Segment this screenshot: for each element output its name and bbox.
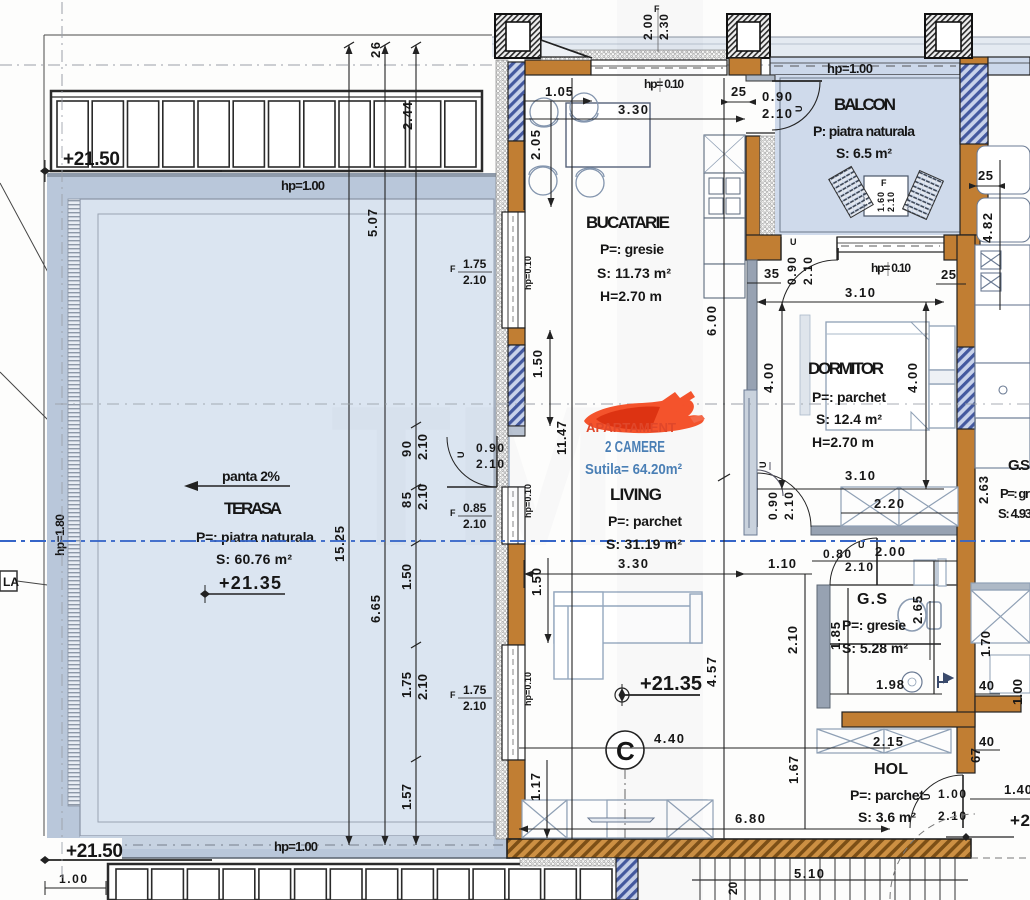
svg-text:40: 40 [979,678,994,693]
svg-text:P=: parchet: P=: parchet [812,389,886,405]
svg-text:panta 2%: panta 2% [222,468,281,484]
svg-text:hp= 0.10: hp= 0.10 [871,261,911,275]
svg-text:P=: gr: P=: gr [1000,486,1030,501]
svg-text:4.00: 4.00 [905,363,920,393]
svg-text:S: 6.5 m²: S: 6.5 m² [836,145,892,161]
svg-text:2.00: 2.00 [875,544,905,559]
svg-text:+21.50: +21.50 [63,149,120,170]
svg-text:Sutila= 64.20m²: Sutila= 64.20m² [585,461,682,478]
svg-text:4.40: 4.40 [654,731,684,746]
svg-text:2 CAMERE: 2 CAMERE [605,439,665,456]
svg-text:25: 25 [941,267,956,282]
svg-text:1.75: 1.75 [463,257,487,271]
svg-text:hp=1.00: hp=1.00 [827,61,873,76]
svg-text:+21.35: +21.35 [219,573,281,593]
svg-text:4.57: 4.57 [704,657,719,687]
svg-text:U: U [790,237,797,247]
svg-text:TM: TM [330,365,619,588]
svg-text:U: U [758,462,768,469]
svg-text:S: 4.93: S: 4.93 [998,506,1030,521]
svg-text:1.17: 1.17 [528,773,543,801]
svg-text:H=2.70 m: H=2.70 m [600,288,662,304]
svg-text:6.00: 6.00 [704,306,719,336]
svg-text:2.44: 2.44 [400,101,415,130]
svg-text:TERASA: TERASA [224,499,282,518]
svg-text:35: 35 [764,266,779,281]
svg-text:G.S: G.S [857,591,887,608]
svg-text:2.10: 2.10 [463,273,487,287]
svg-text:HOL: HOL [874,761,908,778]
svg-text:26: 26 [368,42,383,58]
svg-text:1.10: 1.10 [768,556,796,571]
svg-text:1.75: 1.75 [399,672,414,698]
svg-text:S: 3.6 m²: S: 3.6 m² [858,809,916,825]
svg-text:11.47: 11.47 [554,421,569,455]
svg-text:LA: LA [3,575,19,589]
svg-text:P=: parchet: P=: parchet [850,787,924,803]
svg-text:4.82: 4.82 [980,213,995,243]
svg-text:4.00: 4.00 [761,363,776,393]
svg-text:5.07: 5.07 [365,209,380,237]
svg-text:3.10: 3.10 [845,285,875,300]
svg-text:APARTAMENT: APARTAMENT [586,420,676,435]
svg-text:S: 60.76 m²: S: 60.76 m² [216,551,292,567]
svg-text:P=: gresie: P=: gresie [842,617,906,633]
svg-text:BUCATARIE: BUCATARIE [586,213,670,232]
svg-text:2.05: 2.05 [528,130,543,160]
svg-text:25: 25 [731,84,746,99]
svg-text:2.63: 2.63 [976,476,991,504]
svg-text:0.80: 0.80 [823,547,851,561]
svg-text:1.50: 1.50 [529,568,544,596]
svg-text:3.30: 3.30 [618,556,648,571]
svg-text:1.57: 1.57 [399,784,414,810]
svg-text:2.10: 2.10 [415,674,430,700]
svg-text:2.10: 2.10 [886,192,896,212]
svg-text:hp=1.00: hp=1.00 [281,178,325,193]
svg-text:DORMITOR: DORMITOR [808,359,884,378]
svg-text:1.00: 1.00 [938,787,966,801]
svg-text:2.10: 2.10 [801,257,815,285]
svg-text:2.10: 2.10 [463,699,487,713]
svg-text:6.65: 6.65 [368,595,383,623]
svg-text:1.60: 1.60 [876,192,886,212]
svg-text:0.90: 0.90 [785,257,799,285]
svg-text:1.50: 1.50 [530,350,545,378]
svg-text:2.20: 2.20 [874,496,904,511]
svg-text:1.70: 1.70 [978,631,993,657]
svg-text:2.15: 2.15 [873,734,903,749]
svg-text:1.85: 1.85 [828,622,843,650]
svg-text:S: 11.73 m²: S: 11.73 m² [597,265,671,281]
svg-text:1.67: 1.67 [786,756,801,784]
svg-text:F: F [450,264,456,274]
svg-text:5.10: 5.10 [794,866,824,881]
svg-text:+21.50: +21.50 [66,841,123,862]
svg-text:1.98: 1.98 [876,677,904,692]
svg-text:2.10: 2.10 [782,492,796,520]
svg-text:1.00: 1.00 [59,872,87,886]
svg-text:S: 12.4 m²: S: 12.4 m² [816,411,882,427]
svg-text:hp=0.10: hp=0.10 [523,256,533,290]
svg-text:0.90: 0.90 [766,492,780,520]
svg-text:P: piatra naturala: P: piatra naturala [813,123,915,139]
svg-text:+2: +2 [1010,811,1030,830]
svg-text:BALCON: BALCON [834,95,896,114]
svg-text:C: C [616,736,635,766]
svg-text:S: 31.19 m²: S: 31.19 m² [606,536,682,552]
svg-text:+21.35: +21.35 [640,673,702,695]
svg-text:P=: piatra naturala: P=: piatra naturala [196,529,314,545]
svg-text:1.05: 1.05 [545,84,573,99]
svg-text:1.00: 1.00 [1010,679,1025,705]
svg-text:6.80: 6.80 [735,811,765,826]
svg-text:0.90: 0.90 [762,89,792,104]
svg-text:hp=1.00: hp=1.00 [274,839,318,854]
svg-text:1.75: 1.75 [463,683,487,697]
svg-text:2.10: 2.10 [845,560,873,574]
svg-text:40: 40 [979,734,994,749]
svg-text:2.10: 2.10 [785,626,800,654]
svg-text:20: 20 [726,881,740,895]
svg-text:F: F [450,690,456,700]
svg-text:P=: parchet: P=: parchet [608,513,682,529]
svg-text:LIVING: LIVING [610,485,662,504]
svg-text:25: 25 [978,168,993,183]
svg-text:3.10: 3.10 [845,468,875,483]
svg-text:hp=1.80: hp=1.80 [53,514,67,556]
svg-text:1.40: 1.40 [1004,782,1030,797]
svg-text:hp=0.10: hp=0.10 [523,672,533,706]
svg-text:2.65: 2.65 [910,596,925,624]
svg-text:67: 67 [968,748,983,763]
svg-text:F: F [881,178,887,188]
svg-text:2.10: 2.10 [762,106,792,121]
svg-text:S: 5.28 m²: S: 5.28 m² [842,640,908,656]
svg-text:G.S: G.S [1008,457,1030,474]
svg-text:P=: gresie: P=: gresie [600,241,664,257]
svg-text:3.30: 3.30 [618,102,648,117]
svg-text:U: U [794,106,804,113]
svg-text:H=2.70 m: H=2.70 m [812,434,874,450]
